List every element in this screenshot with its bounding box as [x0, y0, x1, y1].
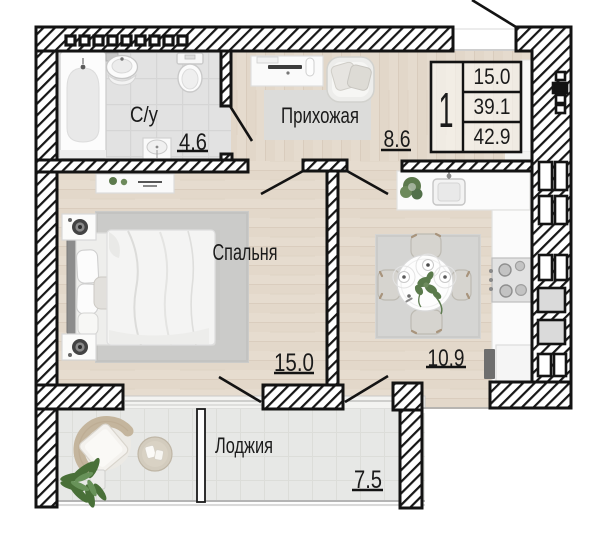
svg-text:42.9: 42.9 [474, 124, 511, 149]
svg-text:Прихожая: Прихожая [281, 103, 359, 128]
svg-text:1: 1 [439, 84, 454, 138]
svg-text:Спальня: Спальня [213, 239, 278, 265]
svg-text:Лоджия: Лоджия [215, 433, 273, 458]
svg-text:15.0: 15.0 [474, 64, 511, 89]
svg-text:39.1: 39.1 [474, 94, 511, 119]
svg-text:С/у: С/у [130, 102, 158, 127]
